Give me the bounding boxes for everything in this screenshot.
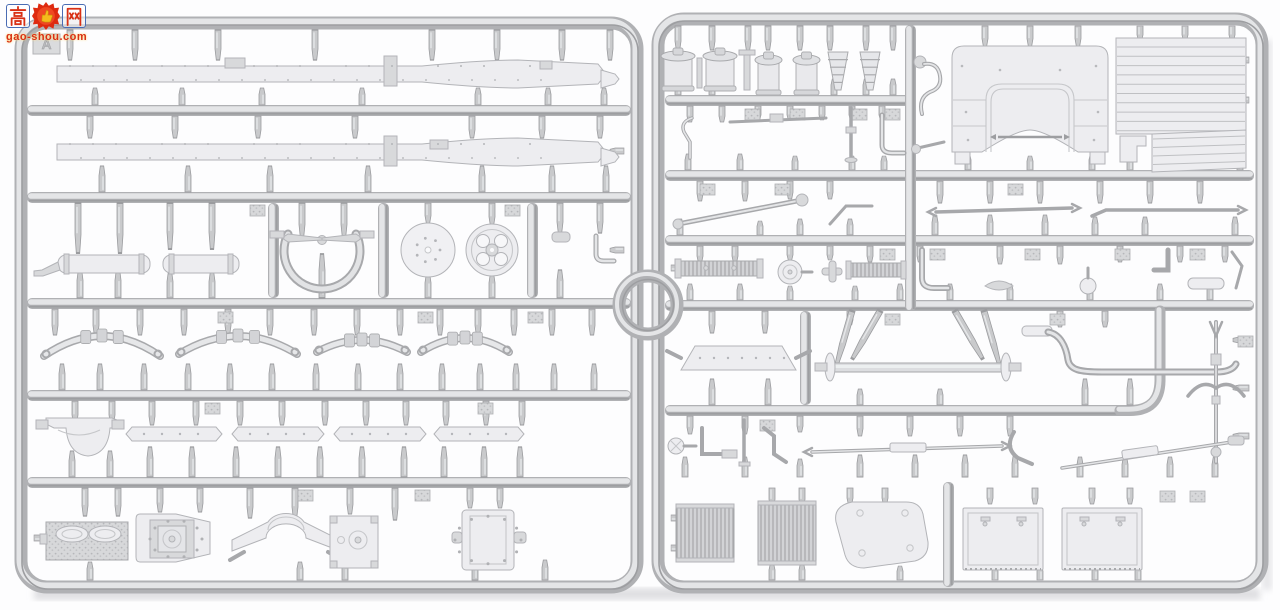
exhaust-muffler-2 [163, 254, 239, 274]
sprue-gate [890, 26, 896, 50]
sprue-gate [255, 116, 261, 138]
sprue-gate [87, 116, 93, 138]
sprue-gate [1177, 246, 1183, 262]
sprue-gate [559, 30, 565, 60]
sprue-gate [737, 154, 743, 170]
chassis-rail-upper [57, 56, 619, 88]
sprue-gate [299, 203, 305, 237]
valve-handwheel [668, 438, 696, 454]
sprue-gate [494, 30, 500, 60]
sprue-gate [297, 562, 303, 580]
sprue-gate [787, 286, 793, 300]
sprue-gate [762, 311, 768, 333]
sprue-gate [1127, 379, 1133, 405]
sprue-gate [792, 156, 798, 170]
sprue-gate [1222, 246, 1228, 262]
coil-spring-cones [828, 52, 880, 90]
sprue-gate [215, 30, 221, 60]
sprue-gate [697, 246, 703, 262]
sprue-gate [1102, 311, 1108, 327]
part-number-tag [700, 184, 715, 195]
sprue-gate [557, 203, 563, 233]
sprue-gate [87, 562, 93, 580]
sprue-gate [352, 116, 358, 138]
watermark-site-url: gao-shou.com [6, 31, 136, 43]
sprue-gate [1057, 246, 1063, 264]
sprue-gate [75, 203, 81, 253]
sprue-gate [1042, 215, 1048, 235]
sprue-gate [932, 215, 938, 235]
sprue-gate [827, 26, 833, 50]
sprue-gate [1147, 181, 1153, 203]
exhaust-muffler-1 [34, 254, 150, 276]
sprue-gate [765, 379, 771, 405]
part-number-tag [885, 109, 900, 120]
sprue-gate [279, 401, 285, 425]
sprue-gate [857, 389, 863, 405]
sprue-gate [850, 310, 883, 361]
part-number-tag [415, 490, 430, 501]
sprue-gate [99, 166, 105, 192]
sprue-gate [69, 451, 75, 477]
radiator-core-1 [676, 504, 734, 562]
sprue-gate [539, 116, 545, 138]
sprue-gate [687, 416, 693, 434]
sprue-gate [542, 560, 548, 580]
sprue-gate [863, 26, 869, 50]
sprue-gate [797, 459, 803, 477]
solid-disc-wheel [401, 223, 455, 277]
part-number-tag [218, 312, 233, 323]
sprue-gate [610, 247, 624, 253]
sprue-gate [890, 79, 896, 95]
sprue-gate [962, 455, 968, 477]
sprue-gate [185, 166, 191, 192]
sprue-photo: A [0, 0, 1280, 610]
sprue-gate [937, 181, 943, 203]
sprue-gate [403, 401, 409, 425]
sprue-gate [77, 270, 83, 298]
sprue-gate [441, 447, 447, 477]
small-fittings-left [552, 232, 614, 261]
part-number-tag [885, 314, 900, 325]
sprue-gate [397, 309, 403, 335]
sprue-gate [847, 219, 853, 235]
sprue-gate [517, 447, 523, 477]
sprue-gate [549, 309, 555, 335]
sprue-gate [1232, 217, 1238, 235]
turnbuckle-rod-1 [804, 432, 1032, 464]
sprue-gate [209, 272, 215, 298]
sprue-gate [601, 88, 607, 105]
sprue-gate [311, 309, 317, 335]
sprue-gate [852, 286, 858, 300]
sprue-gate [354, 309, 360, 335]
sprue-gate [359, 447, 365, 477]
sprue-gate [769, 564, 775, 580]
sprue-gate [732, 246, 738, 262]
sprue-gate [907, 416, 913, 436]
steering-drag-link [673, 194, 872, 229]
part-number-tag [1160, 491, 1175, 502]
sprue-gate [675, 26, 681, 50]
sprue-gate [209, 203, 215, 249]
part-number-tag [852, 109, 867, 120]
sprue-gate [292, 488, 298, 518]
sprue-gate [797, 416, 803, 432]
sprue-gate [275, 447, 281, 477]
sprue-gate [1027, 156, 1033, 170]
sprue-gate [227, 364, 233, 390]
sprue-gate [489, 274, 495, 298]
sprue-gate [425, 203, 431, 223]
air-cleaner-drums [661, 48, 820, 95]
sprue-gate [439, 364, 445, 390]
sprue-gate [797, 26, 803, 50]
sprue-gate [709, 311, 715, 333]
sprue-gate [997, 246, 1003, 264]
sprue-gate [237, 401, 243, 425]
sprue-gate [745, 26, 751, 50]
part-number-tag [930, 249, 945, 260]
sprue-gate [322, 401, 328, 425]
part-number-tag [1025, 249, 1040, 260]
sprue-gate [82, 488, 88, 516]
frame-crossmembers [126, 427, 524, 441]
sprue-gate [59, 364, 65, 390]
sprue-gate [179, 88, 185, 105]
sprue-gate [469, 116, 475, 138]
sprue-gate [1082, 379, 1088, 405]
transfer-case [452, 510, 526, 570]
part-number-tag [528, 312, 543, 323]
sprue-gate [799, 564, 805, 580]
sprue-gate [709, 26, 715, 50]
ribbed-manifold-1 [675, 259, 763, 278]
sprue-gate [365, 166, 371, 192]
part-number-tag [478, 403, 493, 414]
sprue-gate [827, 181, 833, 199]
door-panel-1 [963, 508, 1043, 570]
sprue-gate [757, 221, 763, 235]
sprue-gate [341, 203, 347, 237]
sprue-gate [355, 364, 361, 390]
spare-wheel-hub [466, 224, 518, 276]
sprue-gate [115, 488, 121, 516]
sprue-gate [167, 203, 173, 249]
cjk-glyph-gao [8, 6, 28, 26]
sprue-gate [269, 364, 275, 390]
sprue-gate [597, 203, 603, 233]
sprue-gate [425, 274, 431, 298]
sprue-gate [952, 310, 985, 361]
gearbox-cover-plate [136, 514, 210, 562]
differential-housing [36, 418, 124, 456]
sprue-gate [259, 88, 265, 105]
part-number-tag [1115, 249, 1130, 260]
sprue-gate [827, 246, 833, 260]
sprue-gate [317, 447, 323, 477]
sprue-gate [709, 379, 715, 405]
sprue-gate [197, 488, 203, 512]
sprue-gate [551, 364, 557, 390]
sprue-gate [682, 457, 688, 477]
sprue-gate [397, 364, 403, 390]
sprue-gate [513, 364, 519, 390]
sprue-gate [545, 88, 551, 105]
sprue-gate [141, 364, 147, 390]
sprue-gate [443, 401, 449, 425]
part-number-tag [1050, 314, 1065, 325]
sprue-gate [1167, 457, 1173, 477]
sprue-gate [172, 116, 178, 138]
sprue-gate [167, 272, 173, 298]
watermark: gao-shou.com [6, 2, 136, 43]
axle-saddle-bracket [230, 514, 342, 560]
radiator-core-2 [758, 501, 816, 565]
part-number-tag [1238, 336, 1253, 347]
watermark-char-right [62, 4, 86, 28]
sprue-gate [497, 488, 503, 508]
sprue-gate [185, 364, 191, 390]
sprue-gate [1142, 217, 1148, 235]
sprue-gate [867, 246, 873, 262]
part-number-tag [298, 490, 313, 501]
sprue-gate [719, 106, 725, 122]
sprue-gate [149, 401, 155, 425]
sprue-gate [115, 270, 121, 298]
sprue-gate [363, 401, 369, 425]
cjk-glyph-wang [64, 6, 84, 26]
sprue-gate [401, 447, 407, 477]
sprue-gate [857, 416, 863, 436]
sprue-gate [107, 451, 113, 477]
sprue-gate [742, 181, 748, 201]
sprue-gate [489, 203, 495, 225]
sprue-gate [481, 447, 487, 477]
sprue-gate [157, 488, 163, 512]
horn-lever [912, 56, 945, 154]
sprue-gate [603, 166, 609, 192]
part-number-tag [418, 312, 433, 323]
part-number-tag [775, 184, 790, 195]
sprue-gate [557, 270, 563, 298]
photo-canvas: A [0, 0, 1280, 610]
sprue-gate [987, 488, 993, 504]
sprue-gate [1027, 26, 1033, 46]
sprue-gate [347, 488, 353, 514]
ribbed-manifold-2 [846, 261, 906, 279]
cab-rear-panel [952, 46, 1108, 164]
sprue-gate [247, 488, 253, 518]
sprue-gate [147, 447, 153, 477]
sprue-gate [981, 310, 1002, 365]
sprue-gate [1097, 181, 1103, 203]
sprue-gate [1092, 217, 1098, 235]
chassis-rail-lower [57, 136, 619, 166]
sprue-gate [475, 309, 481, 335]
sprue-gate [787, 246, 793, 260]
sprue-gate [117, 203, 123, 253]
sprue-gate [477, 364, 483, 390]
inspection-plate [330, 516, 378, 568]
part-number-tag [1190, 491, 1205, 502]
sprue-gate [137, 309, 143, 335]
support-bracket-plate [667, 346, 810, 370]
sprue-gate [479, 166, 485, 192]
sprue-gate [912, 455, 918, 477]
sprue-gate [897, 284, 903, 300]
sprue-gate [1032, 488, 1038, 504]
sprue-gate [189, 447, 195, 477]
part-number-tag [505, 205, 520, 216]
sprue-gate [467, 488, 473, 508]
thumbs-up-badge-icon [32, 2, 60, 30]
sprue-gate [313, 364, 319, 390]
engine-block [40, 522, 128, 560]
sprue-gate [987, 215, 993, 235]
sprue-gate [797, 219, 803, 235]
sprue-gate [511, 309, 517, 335]
sprue-gate [312, 30, 318, 60]
sprue-gate [987, 181, 993, 203]
part-number-tag [250, 205, 265, 216]
watermark-char-left [6, 4, 30, 28]
sprue-gate [475, 88, 481, 105]
sprue-gate [549, 166, 555, 192]
sprue-gate [429, 30, 435, 60]
sprue-gate [937, 389, 943, 405]
sprue-gate [591, 364, 597, 390]
sprue-gate [765, 26, 771, 50]
tank-end-plate [836, 502, 928, 568]
sprue-gate [437, 309, 443, 335]
sprue-gate [1157, 284, 1163, 300]
sprue-gate [1089, 488, 1095, 504]
front-axle [815, 353, 1021, 381]
part-number-tag [880, 249, 895, 260]
sprue-gate [92, 88, 98, 105]
part-number-tag [1008, 184, 1023, 195]
sprue-gate [392, 488, 398, 520]
part-number-tag [205, 403, 220, 414]
sprue-gate [97, 364, 103, 390]
cross-fitting [822, 261, 842, 282]
exhaust-downpipe [1022, 326, 1236, 372]
part-number-tag [1190, 249, 1205, 260]
gauge-pulley [778, 260, 812, 284]
sprue-gate [897, 566, 903, 580]
slatted-bed-panel [1116, 38, 1246, 172]
sprue-gate [1075, 26, 1081, 46]
sprue-gate [881, 156, 887, 170]
door-panel-2 [1062, 508, 1142, 570]
tie-rods [928, 204, 1246, 216]
sprue-gate [687, 284, 693, 300]
sprue-gate [233, 447, 239, 477]
sprue-gate [589, 309, 595, 335]
sprue-gate [52, 309, 58, 335]
sprue-gate [607, 30, 613, 60]
sprue-gate [597, 116, 603, 138]
sprue-gate [737, 284, 743, 300]
sprue-gate [1127, 488, 1133, 504]
sprue-gate [982, 26, 988, 46]
sprue-gate [267, 309, 273, 335]
sprue-gate [193, 401, 199, 425]
part-number-tag [745, 109, 760, 120]
sprue-gate [1197, 181, 1203, 203]
sprue-gate [857, 455, 863, 477]
sprue-gate [519, 401, 525, 425]
sprue-gate [181, 309, 187, 335]
sprue-gate [267, 166, 273, 192]
sprue-gate [359, 88, 365, 105]
sprue-gate [957, 416, 963, 436]
sprue-gate [1037, 181, 1043, 203]
